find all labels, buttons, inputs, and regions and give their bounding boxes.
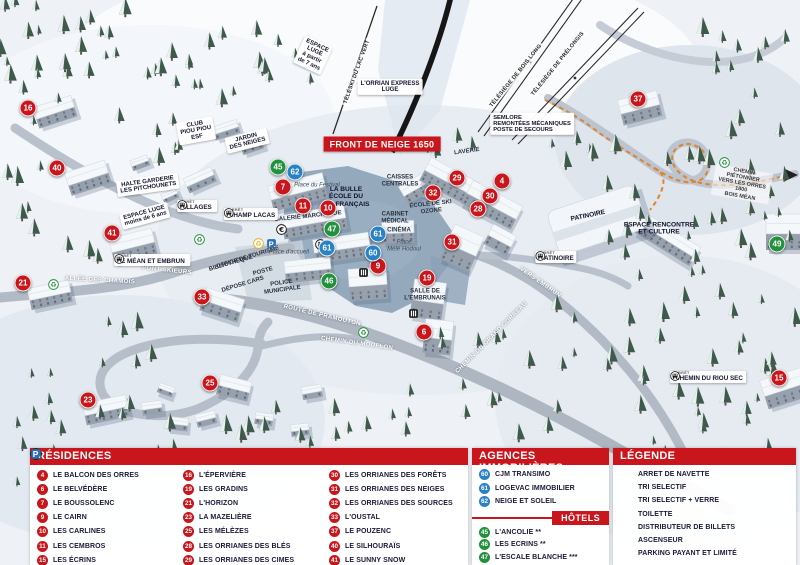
- legend-label: LE SUNNY SNOW: [345, 557, 405, 564]
- agences-title: AGENCES IMMOBILIÈRES: [472, 448, 609, 465]
- recycle-yellow-icon: ♻: [619, 494, 632, 507]
- map-label-patinoire: PATINOIRE: [570, 209, 606, 223]
- residences-column-1: 4LE BALCON DES ORRES6LE BELVÉDÈRE7LE BOU…: [30, 468, 176, 565]
- legend-item-les-carlines: 10LES CARLINES: [30, 525, 176, 539]
- map-label-place-d-accueil: Place d'accueil: [269, 250, 309, 257]
- legend-item-les-gradins: 19LES GRADINS: [176, 482, 322, 496]
- legend-label: LES ORRIANES DES FORÊTS: [345, 472, 446, 479]
- legend-badge-45: 45: [479, 527, 490, 538]
- legend-badge-31: 31: [329, 484, 340, 495]
- map-label-ecole-de-ski-ozone: ÉCOLE DE SKI OZONE: [409, 199, 453, 217]
- legend-badge-60: 60: [479, 469, 490, 480]
- legend-item-l-horizon: 21L'HORIZON: [176, 496, 322, 510]
- elevator-icon: [619, 534, 632, 547]
- map-label-office-de-tourisme: OFFICE DE TOURISME: [216, 245, 280, 270]
- legend-item-le-sunny-snow: 41LE SUNNY SNOW: [322, 553, 468, 565]
- legend-section-legende: LÉGENDE ARRET DE NAVETTE ♻TRI SELECTIF ♻…: [613, 448, 796, 565]
- map-marker-45[interactable]: 45: [270, 159, 287, 176]
- legend-item-arret-de-navette: ARRET DE NAVETTE: [613, 468, 796, 481]
- legend-label: LE SILHOURAÏS: [345, 543, 400, 550]
- map-marker-62[interactable]: 62: [287, 164, 304, 181]
- legend-item-le-boussolenc: 7LE BOUSSOLENC: [30, 496, 176, 510]
- legend-item-l-eperviere: 16L'ÉPERVIÈRE: [176, 468, 322, 482]
- legend-label: L'ÉPERVIÈRE: [199, 472, 246, 479]
- legend-badge-61: 61: [479, 483, 490, 494]
- legend-badge-6: 6: [37, 484, 48, 495]
- map-label-place-du-festival: Place du Festival: [294, 183, 340, 190]
- legend-item-tri-selectif-verre: ♻TRI SELECTIF + VERRE: [613, 494, 796, 507]
- legend-label: LE POUZENC: [345, 528, 391, 535]
- map-marker-15[interactable]: 15: [771, 370, 788, 387]
- legend-label: LE BALCON DES ORRES: [53, 472, 139, 479]
- map-marker-16[interactable]: 16: [20, 100, 37, 117]
- map-marker-7[interactable]: 7: [275, 179, 292, 196]
- map-label-place-mele-hodoul: Place Mélé Hodoul: [387, 239, 421, 252]
- map-marker-41[interactable]: 41: [104, 225, 121, 242]
- legend-label: LA MAZELIÈRE: [199, 514, 252, 521]
- legend-item-les-orrianes-des-sources: 32LES ORRIANES DES SOURCES: [322, 496, 468, 510]
- legend-item-logevac-immobilier: 61LOGEVAC IMMOBILIER: [472, 481, 609, 494]
- map-marker-60[interactable]: 60: [365, 245, 382, 262]
- front-de-neige-banner: FRONT DE NEIGE 1650: [324, 137, 441, 152]
- legend-badge-30: 30: [329, 470, 340, 481]
- map-label-club-piou-piou-esf: CLUB PIOU PIOU ESF: [176, 116, 216, 145]
- legend-badge-33: 33: [329, 512, 340, 523]
- legend-panel: RÉSIDENCES 4LE BALCON DES ORRES6LE BELVÉ…: [30, 448, 796, 565]
- map-label-teleski-du-lac-vert: TÉLÉSKI DU LAC VERT: [342, 37, 372, 106]
- bus-stop-villages: ARRÊTVILLAGES: [177, 200, 217, 212]
- legend-label: LE CAIRN: [53, 514, 87, 521]
- legend-item-distributeur-de-billets: €DISTRIBUTEUR DE BILLETS: [613, 521, 796, 534]
- residences-title: RÉSIDENCES: [30, 448, 468, 465]
- bus-stop-text: ARRÊTLE MÉAN ET EMBRUN: [117, 255, 185, 265]
- bus-stop-name: CHAMP LACAS: [229, 213, 275, 219]
- hotels-title: HÔTELS: [552, 511, 609, 525]
- wc-icon: [619, 508, 632, 521]
- map-label-salle-de-l-embrunais: SALLE DE L'EMBRUNAIS: [404, 288, 445, 301]
- legend-item-parking-payant-et-limite: P PARKING PAYANT ET LIMITÉ: [613, 547, 796, 560]
- legend-label: TOILETTE: [638, 511, 673, 518]
- map-label-chemin-du-grand-correau: CHEMIN DU GRAND CORREAU: [455, 301, 530, 376]
- legend-label: LES ÉCRINS: [53, 557, 96, 564]
- legend-item-les-orrianes-des-forets: 30LES ORRIANES DES FORÊTS: [322, 468, 468, 482]
- bus-stop-champ-lacas: ARRÊTCHAMP LACAS: [224, 208, 278, 220]
- legend-label: TRI SELECTIF + VERRE: [638, 497, 719, 504]
- map-marker-28[interactable]: 28: [470, 201, 487, 218]
- map-marker-32[interactable]: 32: [425, 185, 442, 202]
- legend-label: LES ORRIANES DES NEIGES: [345, 486, 445, 493]
- legend-badge-10: 10: [37, 526, 48, 537]
- map-label-caisses-centrales: CAISSES CENTRALES: [382, 174, 419, 187]
- map-label-l-orrian-express-luge: L'ORRIAN EXPRESS LUGE: [358, 79, 423, 95]
- bus-stop-patinoire: ARRÊTPATINOIRE: [535, 251, 576, 263]
- hotels-header: HÔTELS: [472, 511, 609, 525]
- legend-item-le-pouzenc: 37LE POUZENC: [322, 525, 468, 539]
- legend-badge-29: 29: [183, 555, 194, 565]
- svg-text:♻: ♻: [721, 159, 727, 167]
- legende-title: LÉGENDE: [613, 448, 796, 465]
- map-marker-19[interactable]: 19: [419, 270, 436, 287]
- legend-label: ASCENSEUR: [638, 537, 683, 544]
- map-label-route-de-pramouton: ROUTE DE PRAMOUTON: [283, 304, 362, 328]
- legend-item-neige-et-soleil: 62NEIGE ET SOLEIL: [472, 495, 609, 508]
- map-marker-21[interactable]: 21: [15, 275, 32, 292]
- map-label-telesiege-de-prelongis: TÉLÉSIÈGE DE PRÉLONGIS: [529, 29, 587, 99]
- legend-label: DISTRIBUTEUR DE BILLETS: [638, 524, 735, 531]
- recycle-green-icon: ♻: [619, 481, 632, 494]
- legend-badge-62: 62: [479, 496, 490, 507]
- residences-column-3: 30LES ORRIANES DES FORÊTS31LES ORRIANES …: [322, 468, 468, 565]
- legend-badge-46: 46: [479, 539, 490, 550]
- legend-label: LES ORRIANES DES BLÉS: [199, 543, 291, 550]
- bus-stop-name: CHEMIN DU RIOU SEC: [675, 376, 743, 382]
- map-label-vers-embrun: VERS EMBRUN: [518, 266, 562, 299]
- svg-text:♻: ♻: [196, 236, 202, 244]
- hotels-items: 45L'ANCOLIE **46LES ECRINS **47L'ESCALE …: [472, 526, 609, 565]
- legend-item-la-mazeliere: 23LA MAZELIÈRE: [176, 511, 322, 525]
- map-marker-6[interactable]: 6: [416, 324, 433, 341]
- legend-item-ascenseur: ASCENSEUR: [613, 534, 796, 547]
- legend-badge-11: 11: [37, 541, 48, 552]
- bus-stop-le-mean-et-embrun: ARRÊTLE MÉAN ET EMBRUN: [114, 254, 190, 266]
- residences-columns: 4LE BALCON DES ORRES6LE BELVÉDÈRE7LE BOU…: [30, 465, 468, 565]
- map-marker-49[interactable]: 49: [769, 236, 786, 253]
- legend-item-toilette: TOILETTE: [613, 508, 796, 521]
- legend-label: LES CARLINES: [53, 528, 106, 535]
- map-label-allee-des-chamois: ALLÉE DES CHAMOIS: [65, 276, 136, 286]
- legend-item-les-orrianes-des-bles: 28LES ORRIANES DES BLÉS: [176, 539, 322, 553]
- legend-item-le-balcon-des-orres: 4LE BALCON DES ORRES: [30, 468, 176, 482]
- legend-label: LE BELVÉDÈRE: [53, 486, 107, 493]
- legend-item-le-silhourais: 40LE SILHOURAÏS: [322, 539, 468, 553]
- map-marker-10[interactable]: 10: [320, 200, 337, 217]
- map-label-pont-skieurs: PONT SKIEURS: [142, 265, 192, 277]
- bus-icon: [619, 468, 632, 481]
- legend-label: L'ESCALE BLANCHE ***: [495, 554, 578, 561]
- legende-items: ARRET DE NAVETTE ♻TRI SELECTIF ♻TRI SELE…: [613, 465, 796, 560]
- map-label-poste: POSTE: [252, 266, 273, 278]
- legend-item-le-belvedere: 6LE BELVÉDÈRE: [30, 482, 176, 496]
- map-label-bibliotheque: BIBLIOTHÈQUE: [208, 255, 253, 274]
- svg-text:♻: ♻: [50, 281, 56, 289]
- map-label-espace-luge-a-partir-de-7-ans: ESPACE LUGE à partir de 7 ans: [293, 35, 333, 75]
- svg-text:♻: ♻: [255, 240, 261, 248]
- map-marker-61[interactable]: 61: [370, 226, 387, 243]
- legend-label: LES ORRIANES DES CIMES: [199, 557, 294, 564]
- legend-item-les-melezes: 25LES MÉLÈZES: [176, 525, 322, 539]
- legend-badge-16: 16: [183, 470, 194, 481]
- map-label-espace-rencontre-et-culture: ESPACE RENCONTRE ET CULTURE: [624, 222, 694, 237]
- legend-label: L'ANCOLIE **: [495, 529, 541, 536]
- legend-badge-9: 9: [37, 512, 48, 523]
- map-label-semlore-remontees-mecaniques-poste: SEMLORE REMONTÉES MÉCANIQUES POSTE DE SE…: [490, 113, 574, 135]
- legend-item-les-cembros: 11LES CEMBROS: [30, 539, 176, 553]
- bus-stop-text: ARRÊTCHEMIN DU RIOU SEC: [675, 372, 743, 382]
- legend-badge-19: 19: [183, 484, 194, 495]
- map-marker-33[interactable]: 33: [194, 289, 211, 306]
- map-label-telesiege-de-bois-long: TÉLÉSIÈGE DE BOIS LONG: [487, 42, 544, 110]
- bus-stop-text: ARRÊTCHAMP LACAS: [229, 209, 275, 219]
- legend-badge-21: 21: [183, 498, 194, 509]
- legend-badge-4: 4: [37, 470, 48, 481]
- legend-label: CJM TRANSIMO: [495, 471, 550, 478]
- map-marker-31[interactable]: 31: [444, 234, 461, 251]
- ski-resort-map: L'ORRIAN EXPRESS LUGEESPACE LUGE à parti…: [0, 0, 800, 565]
- map-label-police-municipale: POLICE MUNICIPALE: [263, 278, 301, 296]
- parking-icon: P: [619, 547, 632, 560]
- map-label-laverie: LAVERIE: [454, 147, 480, 157]
- legend-label: LES GRADINS: [199, 486, 248, 493]
- legend-badge-23: 23: [183, 512, 194, 523]
- map-marker-47[interactable]: 47: [324, 221, 341, 238]
- map-label-halte-garderie-les-pitchounets: HALTE GARDERIE LES PITCHOUNETS: [116, 173, 180, 198]
- legend-badge-15: 15: [37, 555, 48, 565]
- legend-label: NEIGE ET SOLEIL: [495, 498, 556, 505]
- legend-section-agences: AGENCES IMMOBILIÈRES 60CJM TRANSIMO61LOG…: [472, 448, 609, 565]
- map-marker-46[interactable]: 46: [321, 273, 338, 290]
- legend-badge-7: 7: [37, 498, 48, 509]
- legend-badge-32: 32: [329, 498, 340, 509]
- svg-text:♻: ♻: [360, 329, 366, 337]
- legend-item-l-ancolie: 45L'ANCOLIE **: [472, 526, 609, 539]
- svg-text:€: €: [278, 225, 284, 234]
- euro-icon: €: [619, 521, 632, 534]
- legend-item-les-orrianes-des-neiges: 31LES ORRIANES DES NEIGES: [322, 482, 468, 496]
- hotels-separator: [472, 517, 552, 519]
- legend-label: LES CEMBROS: [53, 543, 105, 550]
- map-marker-40[interactable]: 40: [49, 160, 66, 177]
- map-label-jardin-des-neiges: JARDIN DES NEIGES: [224, 128, 269, 154]
- map-label-cabinet-medical: CABINET MÉDICAL: [381, 211, 408, 224]
- map-label-chemin-pietonnier-vers-les-orres-1: CHEMIN PIÉTONNIER VERS LES ORRES 1800 BO…: [711, 164, 773, 204]
- map-marker-23[interactable]: 23: [80, 392, 97, 409]
- legend-item-les-orrianes-des-cimes: 29LES ORRIANES DES CIMES: [176, 553, 322, 565]
- legend-item-l-escale-blanche: 47L'ESCALE BLANCHE ***: [472, 551, 609, 564]
- legend-label: ARRET DE NAVETTE: [638, 471, 709, 478]
- legend-label: LOGEVAC IMMOBILIER: [495, 485, 575, 492]
- legend-item-les-ecrins: 46LES ECRINS **: [472, 538, 609, 551]
- legend-label: L'HORIZON: [199, 500, 238, 507]
- legend-badge-47: 47: [479, 552, 490, 563]
- legend-label: L'OUSTAL: [345, 514, 380, 521]
- legend-item-le-cairn: 9LE CAIRN: [30, 511, 176, 525]
- legend-item-les-ecrins: 15LES ÉCRINS: [30, 553, 176, 565]
- map-label-cinema: CINÉMA: [387, 228, 411, 235]
- map-marker-61[interactable]: 61: [319, 240, 336, 257]
- svg-text:P: P: [269, 239, 274, 248]
- legend-item-l-oustal: 33L'OUSTAL: [322, 511, 468, 525]
- legend-section-residences: RÉSIDENCES 4LE BALCON DES ORRES6LE BELVÉ…: [30, 448, 468, 565]
- legend-label: PARKING PAYANT ET LIMITÉ: [638, 550, 737, 557]
- bus-stop-chemin-du-riou-sec: ARRÊTCHEMIN DU RIOU SEC: [670, 371, 746, 383]
- legend-label: LES ORRIANES DES SOURCES: [345, 500, 453, 507]
- legend-badge-41: 41: [329, 555, 340, 565]
- map-marker-30[interactable]: 30: [482, 188, 499, 205]
- map-marker-29[interactable]: 29: [449, 170, 466, 187]
- map-marker-37[interactable]: 37: [630, 91, 647, 108]
- legend-badge-40: 40: [329, 541, 340, 552]
- map-marker-4[interactable]: 4: [494, 173, 511, 190]
- bus-stop-name: LE MÉAN ET EMBRUN: [117, 259, 185, 265]
- legend-label: LES ECRINS **: [495, 541, 546, 548]
- legend-badge-28: 28: [183, 541, 194, 552]
- legend-badge-25: 25: [183, 526, 194, 537]
- map-label-chemin-du-mouflon: CHEMIN DU MOUFLON: [320, 336, 393, 353]
- map-marker-11[interactable]: 11: [295, 198, 312, 215]
- map-label-espace-luge-moins-de-6-ans: ESPACE LUGE moins de 6 ans: [119, 202, 171, 231]
- map-marker-25[interactable]: 25: [202, 375, 219, 392]
- residences-column-2: 16L'ÉPERVIÈRE19LES GRADINS21L'HORIZON23L…: [176, 468, 322, 565]
- legend-badge-37: 37: [329, 526, 340, 537]
- map-label-depose-cars: DÉPOSE CARS: [221, 275, 265, 294]
- legend-label: TRI SELECTIF: [638, 484, 686, 491]
- legend-label: LES MÉLÈZES: [199, 528, 249, 535]
- legend-item-tri-selectif: ♻TRI SELECTIF: [613, 481, 796, 494]
- legend-label: LE BOUSSOLENC: [53, 500, 115, 507]
